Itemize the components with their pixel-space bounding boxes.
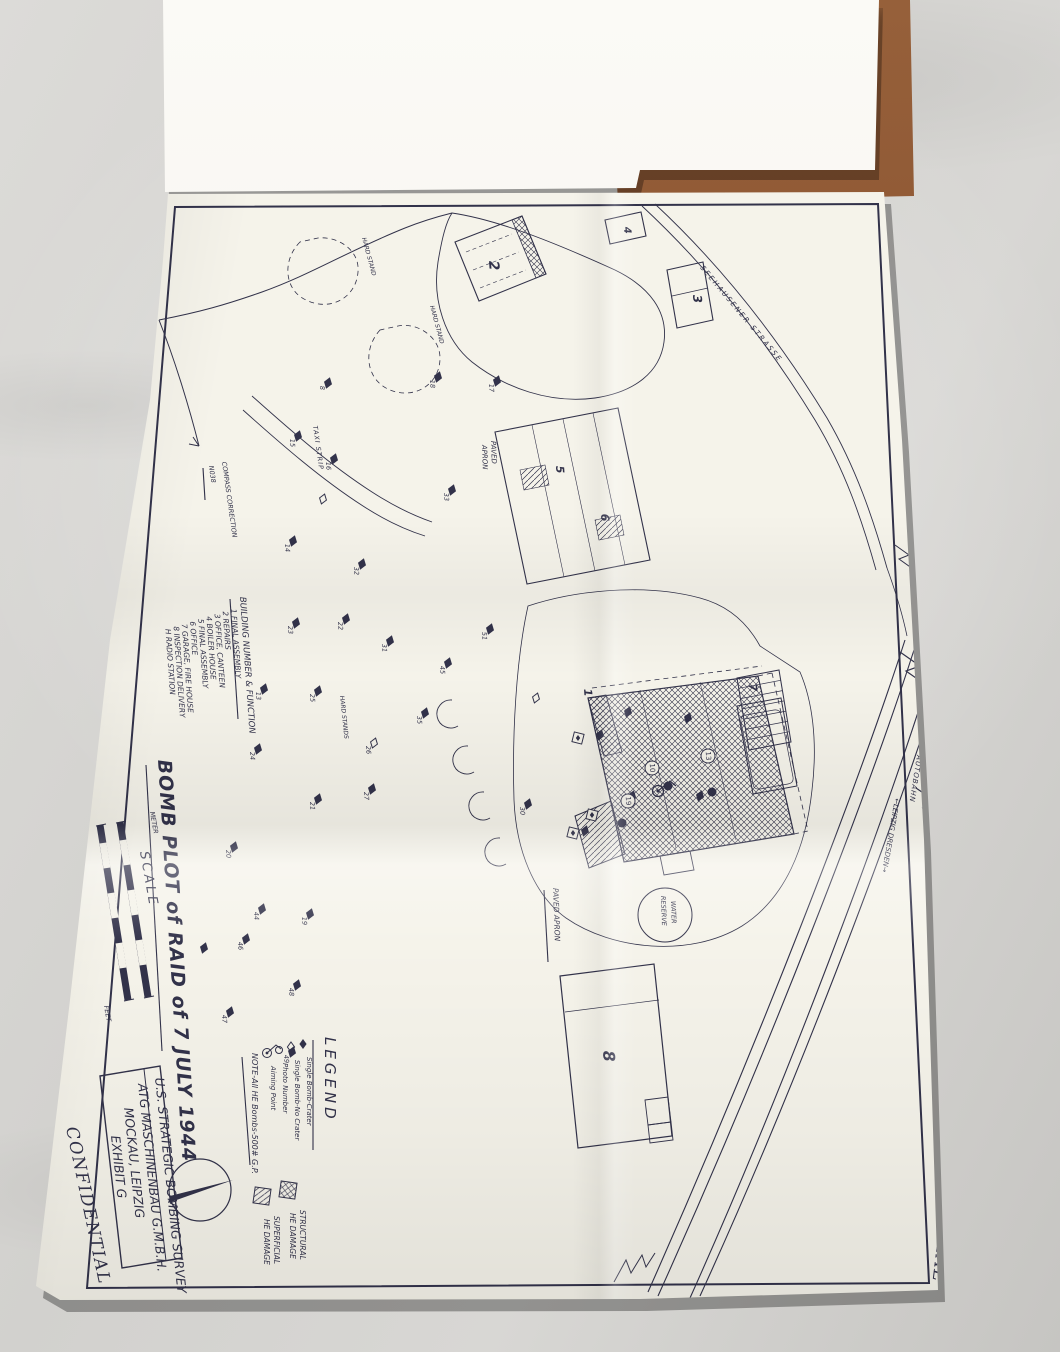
- confidential-stamp-right: CONFIDENTIAL: [927, 1121, 966, 1283]
- photo-number: 10: [648, 763, 657, 772]
- crater-number: 32: [352, 567, 361, 576]
- water-reserve-label: WATER: [669, 901, 678, 924]
- legend-damage-label: SUPERFICIAL: [272, 1216, 281, 1264]
- building-numbers: 12345678: [485, 225, 760, 1062]
- crater-number: 17: [487, 384, 496, 394]
- crater-number: 48: [287, 988, 296, 997]
- compass-correction-value: N038: [207, 465, 217, 483]
- building-number: 4: [621, 225, 633, 234]
- crater-number: 47: [220, 1015, 229, 1025]
- crater-number: 13: [254, 692, 263, 701]
- hard-stand-label: HARD STANDS: [338, 695, 350, 739]
- photo-number: 13: [704, 751, 713, 760]
- crater-number: 15: [288, 439, 297, 448]
- map-border: [87, 204, 929, 1288]
- confidential-stamp-left: CONFIDENTIAL: [61, 1125, 114, 1287]
- crater-number: 49: [282, 1055, 291, 1064]
- crater-number: 26: [364, 746, 373, 755]
- crater-number: 45: [438, 666, 447, 675]
- crater-number: 33: [442, 493, 451, 502]
- legend-damage-label: HE DAMAGE: [288, 1213, 297, 1259]
- strasse-label: SEEHAUSENER STRASSE: [698, 264, 784, 364]
- autobahn-direction-label: ←LEIPZIG DRESDEN→: [880, 798, 901, 873]
- foldout-map-page: CONFIDENTIAL CONFIDENTIAL U.S. STRATEGIC…: [0, 0, 1060, 1352]
- crater-number: 20: [224, 850, 233, 859]
- legend-damage-label: HE DAMAGE: [262, 1219, 271, 1265]
- crater-number: 51: [480, 632, 489, 641]
- crater-number: 21: [308, 802, 317, 811]
- crater-number: 30: [518, 807, 527, 816]
- crater-number: 16: [324, 462, 333, 471]
- underlines: [146, 468, 548, 1165]
- legend-title: LEGEND: [321, 1037, 339, 1123]
- crater-number: 14: [283, 544, 292, 553]
- photo-number: 19: [624, 796, 633, 805]
- crater-number: 31: [380, 644, 389, 653]
- paved-apron-label: APRON: [480, 444, 489, 471]
- hard-stand-label: HARD STAND: [428, 305, 445, 345]
- crater-number: 18: [428, 380, 437, 389]
- water-reserve-label: RESERVE: [659, 896, 668, 927]
- building-number: 7: [746, 683, 760, 692]
- building-number: 6: [598, 513, 612, 522]
- legend-item-label: Photo Number: [281, 1063, 289, 1114]
- legend-note: NOTE-All HE Bombs-500# G.P.: [250, 1053, 259, 1174]
- crater-number: 23: [286, 626, 295, 635]
- bomb-crater-symbol: [199, 942, 209, 954]
- map-linework: [87, 204, 945, 1298]
- crater-number: 25: [308, 694, 317, 703]
- crater-number: 8: [318, 386, 326, 391]
- building-number: 2: [485, 260, 502, 271]
- bomb-no-crater-symbol: [318, 493, 328, 505]
- building-number: 1: [581, 688, 595, 697]
- legend-item-label: Single Bomb-Crater: [305, 1057, 313, 1127]
- crater-number: 19: [300, 917, 309, 926]
- building-number: 5: [553, 465, 567, 474]
- paved-apron-label: PAVED: [489, 441, 498, 465]
- building-number: 3: [690, 294, 705, 303]
- scale-bars: [96, 821, 154, 1001]
- bomb-plot-map: CONFIDENTIAL CONFIDENTIAL U.S. STRATEGIC…: [0, 0, 1060, 1352]
- impact-dot: [708, 788, 717, 797]
- legend-damage-label: STRUCTURAL: [298, 1210, 307, 1260]
- impact-dot: [618, 819, 627, 828]
- compass-correction-label: COMPASS CORRECTION: [220, 461, 239, 538]
- building-number: 8: [599, 1050, 619, 1062]
- crater-number: 46: [236, 942, 245, 951]
- hard-stand-label: HARD STAND: [360, 237, 377, 277]
- crater-number: 27: [362, 792, 371, 802]
- scale-feet-label: FEET: [102, 1005, 113, 1023]
- paved-apron-label: PAVED APRON: [551, 888, 562, 942]
- impact-dot: [664, 782, 673, 791]
- legend-item-label: Aiming Point: [269, 1065, 277, 1110]
- crater-number: 35: [415, 716, 424, 725]
- legend-item-label: Single Bomb-No Crater: [293, 1060, 301, 1141]
- photo-of-bomb-plot-foldout: CONFIDENTIAL CONFIDENTIAL U.S. STRATEGIC…: [0, 0, 1060, 1352]
- crater-number: 24: [248, 752, 257, 761]
- crater-number: 22: [336, 622, 345, 631]
- crater-number: 44: [252, 912, 261, 921]
- taxi-strip-label: TAXI STRIP: [311, 425, 325, 470]
- map-text: CONFIDENTIAL CONFIDENTIAL U.S. STRATEGIC…: [61, 237, 967, 1296]
- bomb-no-crater-symbol: [531, 692, 541, 704]
- scale-label: SCALE: [136, 850, 161, 908]
